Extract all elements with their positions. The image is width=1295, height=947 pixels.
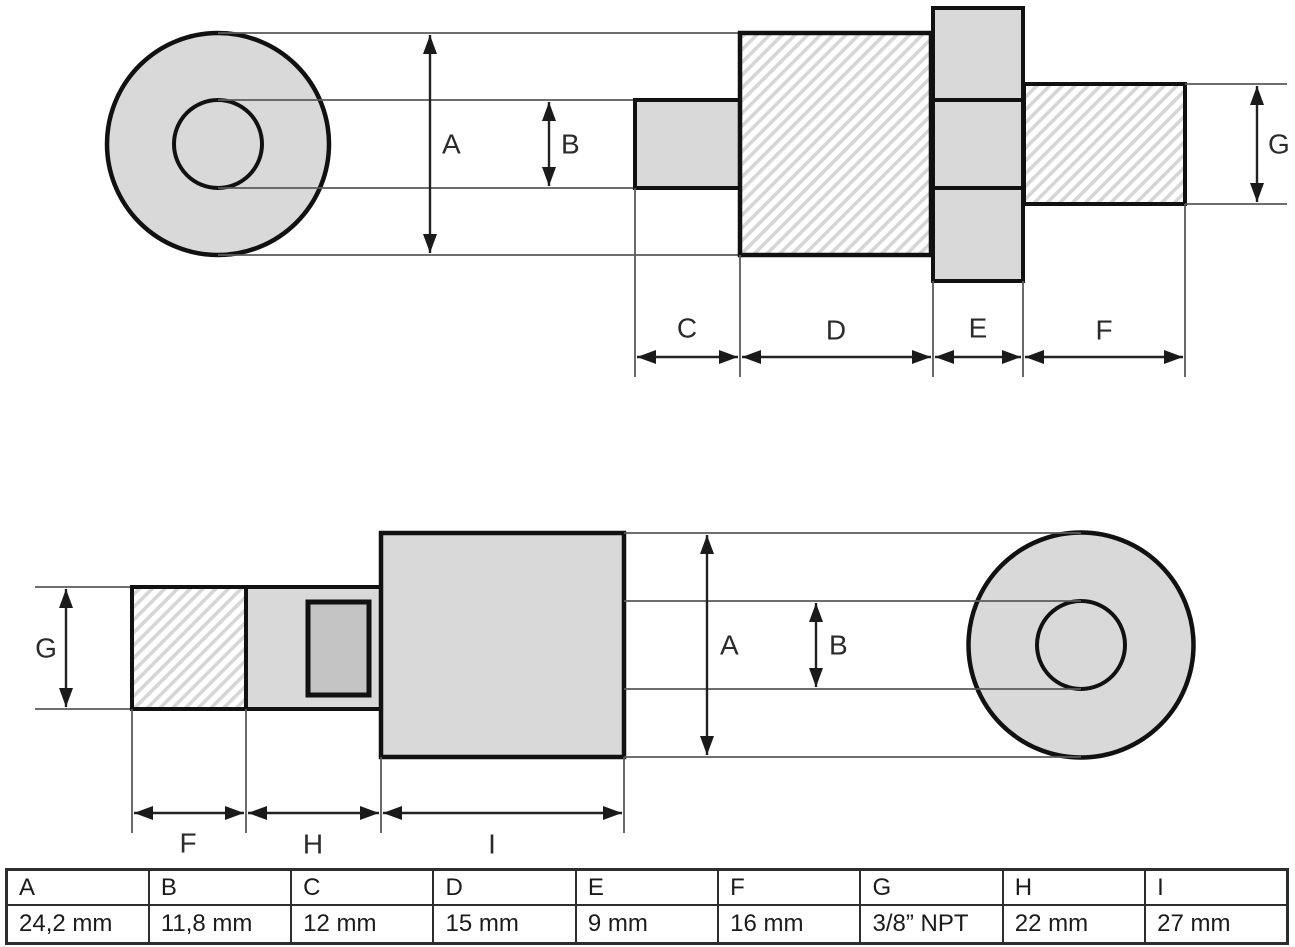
dim-g-label-top: G	[1268, 129, 1290, 160]
section-h-slot-rect	[308, 602, 369, 695]
section-d-body-rect	[740, 33, 931, 255]
table-header-cell-h: H	[1003, 870, 1145, 906]
dim-d-label: D	[826, 315, 846, 346]
section-c-stem-rect	[635, 100, 740, 188]
table-value-cell-b: 11,8 mm	[149, 905, 291, 944]
engineering-drawing-canvas: A B G C D E F	[0, 0, 1295, 947]
dim-f-label-top: F	[1095, 315, 1112, 346]
table-value-cell-i: 27 mm	[1145, 905, 1287, 944]
table-header-cell-c: C	[291, 870, 433, 906]
dim-a-label-top: A	[442, 129, 461, 160]
dimension-table: A B C D E F G H I 24,2 mm 11,8 mm 12 mm …	[5, 868, 1289, 945]
section-f-thread-rect-top	[1024, 84, 1185, 204]
dim-h-label: H	[303, 829, 323, 860]
table-header-cell-a: A	[7, 870, 149, 906]
dim-b-label-bottom: B	[829, 630, 848, 661]
table-value-row: 24,2 mm 11,8 mm 12 mm 15 mm 9 mm 16 mm 3…	[7, 905, 1288, 944]
table-header-cell-g: G	[860, 870, 1002, 906]
dim-i-label: I	[488, 829, 496, 860]
table-header-row: A B C D E F G H I	[7, 870, 1288, 906]
dim-f-label-bottom: F	[179, 828, 196, 859]
dim-c-label: C	[677, 313, 697, 344]
table-value-cell-d: 15 mm	[433, 905, 575, 944]
section-f-thread-rect-bottom	[132, 587, 246, 709]
dim-b-label-top: B	[561, 129, 580, 160]
table-header-cell-d: D	[433, 870, 575, 906]
dim-a-label-bottom: A	[720, 630, 739, 661]
table-header-cell-f: F	[718, 870, 860, 906]
hex-nut-facet-top	[933, 8, 1023, 100]
dim-e-label: E	[969, 313, 988, 344]
table-value-cell-a: 24,2 mm	[7, 905, 149, 944]
table-value-cell-f: 16 mm	[718, 905, 860, 944]
view-top: A B G C D E F	[107, 8, 1290, 377]
table-header-cell-b: B	[149, 870, 291, 906]
table-value-cell-h: 22 mm	[1003, 905, 1145, 944]
table-header-cell-i: I	[1145, 870, 1287, 906]
technical-drawing-page: A B G C D E F	[0, 0, 1295, 947]
table-value-cell-g: 3/8” NPT	[860, 905, 1002, 944]
hex-nut-facet-bottom	[933, 188, 1023, 281]
table-header-cell-e: E	[576, 870, 718, 906]
table-value-cell-e: 9 mm	[576, 905, 718, 944]
bottom-inner-bore-circle	[1037, 601, 1125, 689]
view-bottom: G A B F H I	[35, 533, 1194, 860]
section-i-body-rect	[381, 533, 624, 757]
hex-nut-facet-middle	[933, 100, 1023, 188]
top-inner-bore-circle	[174, 100, 262, 188]
table-value-cell-c: 12 mm	[291, 905, 433, 944]
dim-g-label-bottom: G	[35, 633, 57, 664]
